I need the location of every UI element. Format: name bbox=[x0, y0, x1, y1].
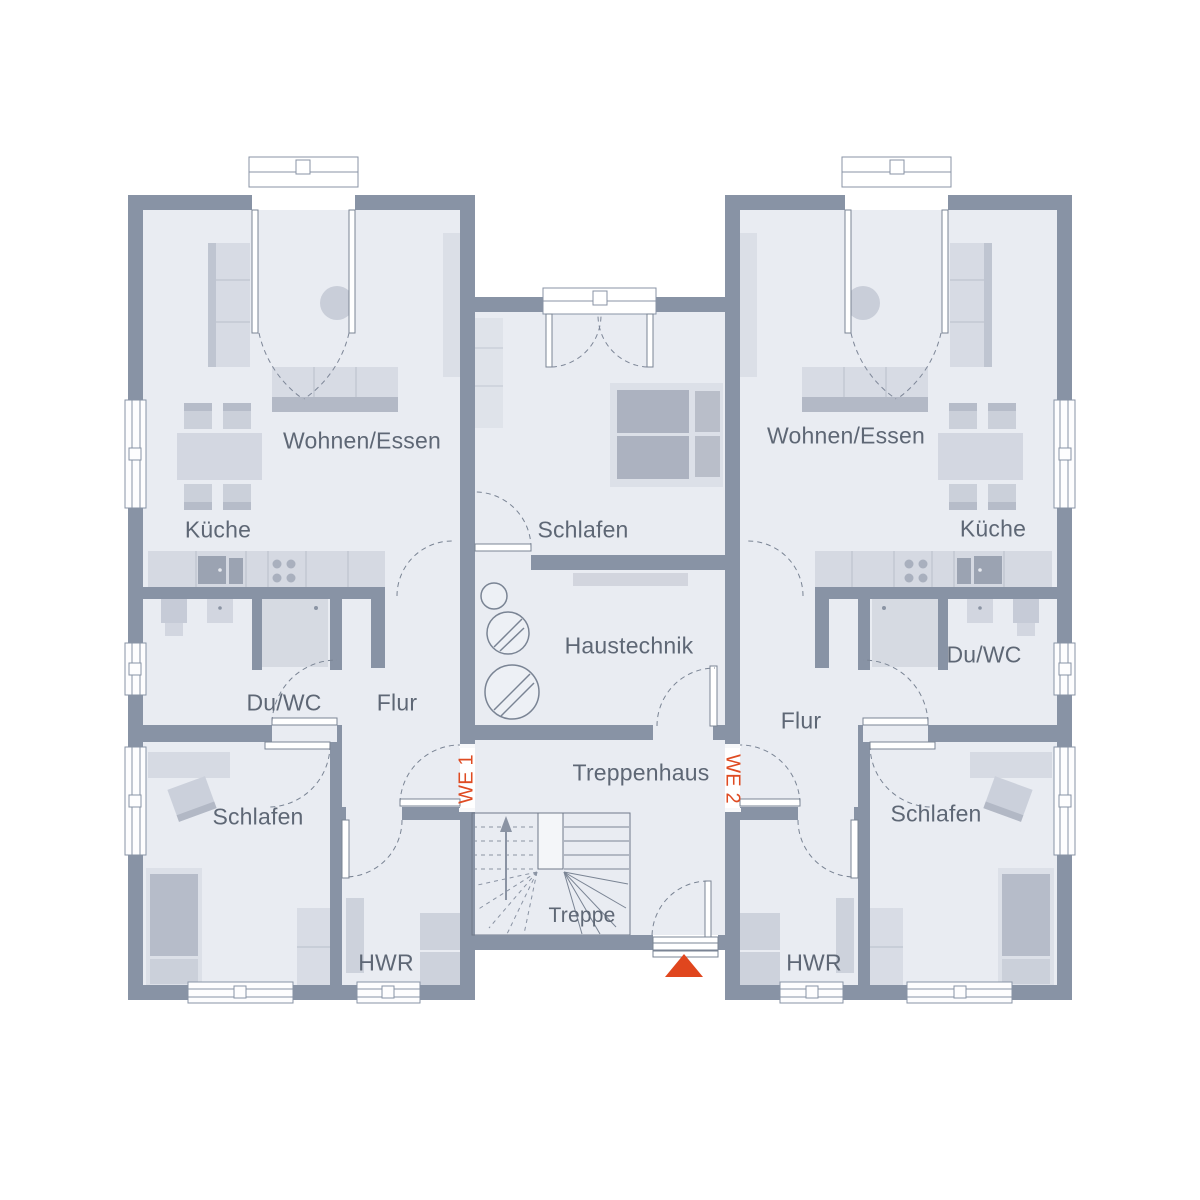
wardrobe bbox=[297, 908, 330, 985]
room-label-tech: Haustechnik bbox=[565, 633, 694, 660]
room-label-stairhall: Treppenhaus bbox=[573, 760, 710, 787]
room-label-utility-we1: HWR bbox=[358, 950, 414, 977]
unit-we1 bbox=[125, 157, 476, 1003]
unit-label-we1: WE 1 bbox=[456, 754, 479, 804]
room-label-bath-we1: Du/WC bbox=[246, 690, 321, 717]
washer-dryer bbox=[420, 913, 460, 985]
room-label-kitchen-we1: Küche bbox=[185, 517, 251, 544]
bed-we1 bbox=[146, 868, 202, 987]
wall-shelf bbox=[443, 233, 460, 377]
room-label-bedroom-we2: Schlafen bbox=[890, 801, 981, 828]
sideboard bbox=[208, 243, 250, 367]
stair-well bbox=[538, 813, 563, 869]
room-label-kitchen-we2: Küche bbox=[960, 516, 1026, 543]
closet-central bbox=[475, 318, 503, 428]
washbasin bbox=[207, 599, 233, 623]
unit-we2 bbox=[724, 157, 1075, 1003]
room-label-bedroom-central: Schlafen bbox=[537, 517, 628, 544]
door-threshold bbox=[459, 808, 476, 812]
room-label-stairs: Treppe bbox=[549, 904, 616, 928]
window bbox=[188, 982, 293, 1003]
window bbox=[125, 643, 146, 695]
room-label-living-we1: Wohnen/Essen bbox=[283, 428, 441, 455]
room-label-hall-we2: Flur bbox=[781, 708, 821, 735]
floor-plan-svg bbox=[0, 0, 1200, 1200]
dresser bbox=[148, 752, 230, 778]
room-label-utility-we2: HWR bbox=[786, 950, 842, 977]
room-label-living-we2: Wohnen/Essen bbox=[767, 423, 925, 450]
kitchen-sink bbox=[198, 556, 226, 584]
room-label-bath-we2: Du/WC bbox=[946, 642, 1021, 669]
window bbox=[357, 982, 420, 1003]
vent-duct bbox=[573, 573, 688, 586]
kitchen-counter bbox=[148, 551, 385, 587]
window bbox=[125, 400, 146, 508]
door-threshold bbox=[459, 744, 476, 748]
window bbox=[125, 747, 146, 855]
room-label-bedroom-we1: Schlafen bbox=[212, 804, 303, 831]
wall-tech-top bbox=[531, 555, 725, 570]
floor-plan-canvas: Wohnen/Essen Küche Du/WC Flur Schlafen H… bbox=[0, 0, 1200, 1200]
unit-label-we2: WE 2 bbox=[721, 754, 744, 804]
room-label-hall-we1: Flur bbox=[377, 690, 417, 717]
double-bed bbox=[610, 383, 723, 487]
shower bbox=[262, 597, 328, 667]
